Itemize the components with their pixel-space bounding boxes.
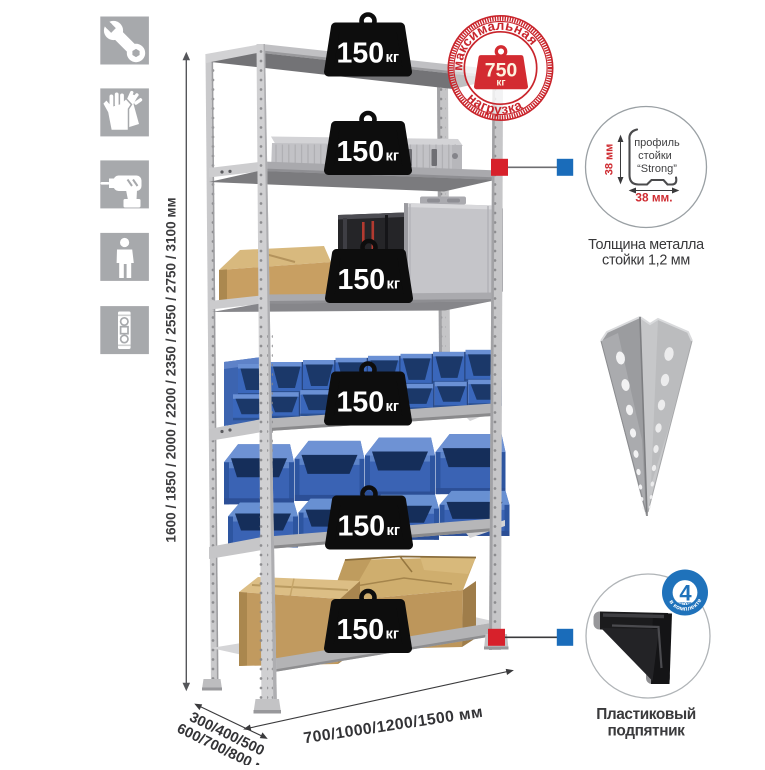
svg-text:подпятник: подпятник	[608, 723, 686, 740]
svg-text:штуки: штуки	[678, 600, 692, 605]
svg-text:стойки 1,2 мм: стойки 1,2 мм	[602, 253, 690, 269]
svg-text:Толщина металла: Толщина металла	[588, 237, 704, 253]
svg-text:кг: кг	[496, 78, 505, 89]
svg-text:“Strong”: “Strong”	[637, 163, 677, 175]
svg-text:38 мм: 38 мм	[604, 144, 616, 176]
svg-text:профиль: профиль	[634, 137, 680, 149]
svg-text:стойки: стойки	[638, 150, 672, 162]
svg-text:38 мм.: 38 мм.	[635, 191, 672, 205]
svg-text:Пластиковый: Пластиковый	[596, 706, 696, 723]
svg-text:1600 / 1850 / 2000 / 2200 / 23: 1600 / 1850 / 2000 / 2200 / 2350 / 2550 …	[164, 197, 179, 542]
